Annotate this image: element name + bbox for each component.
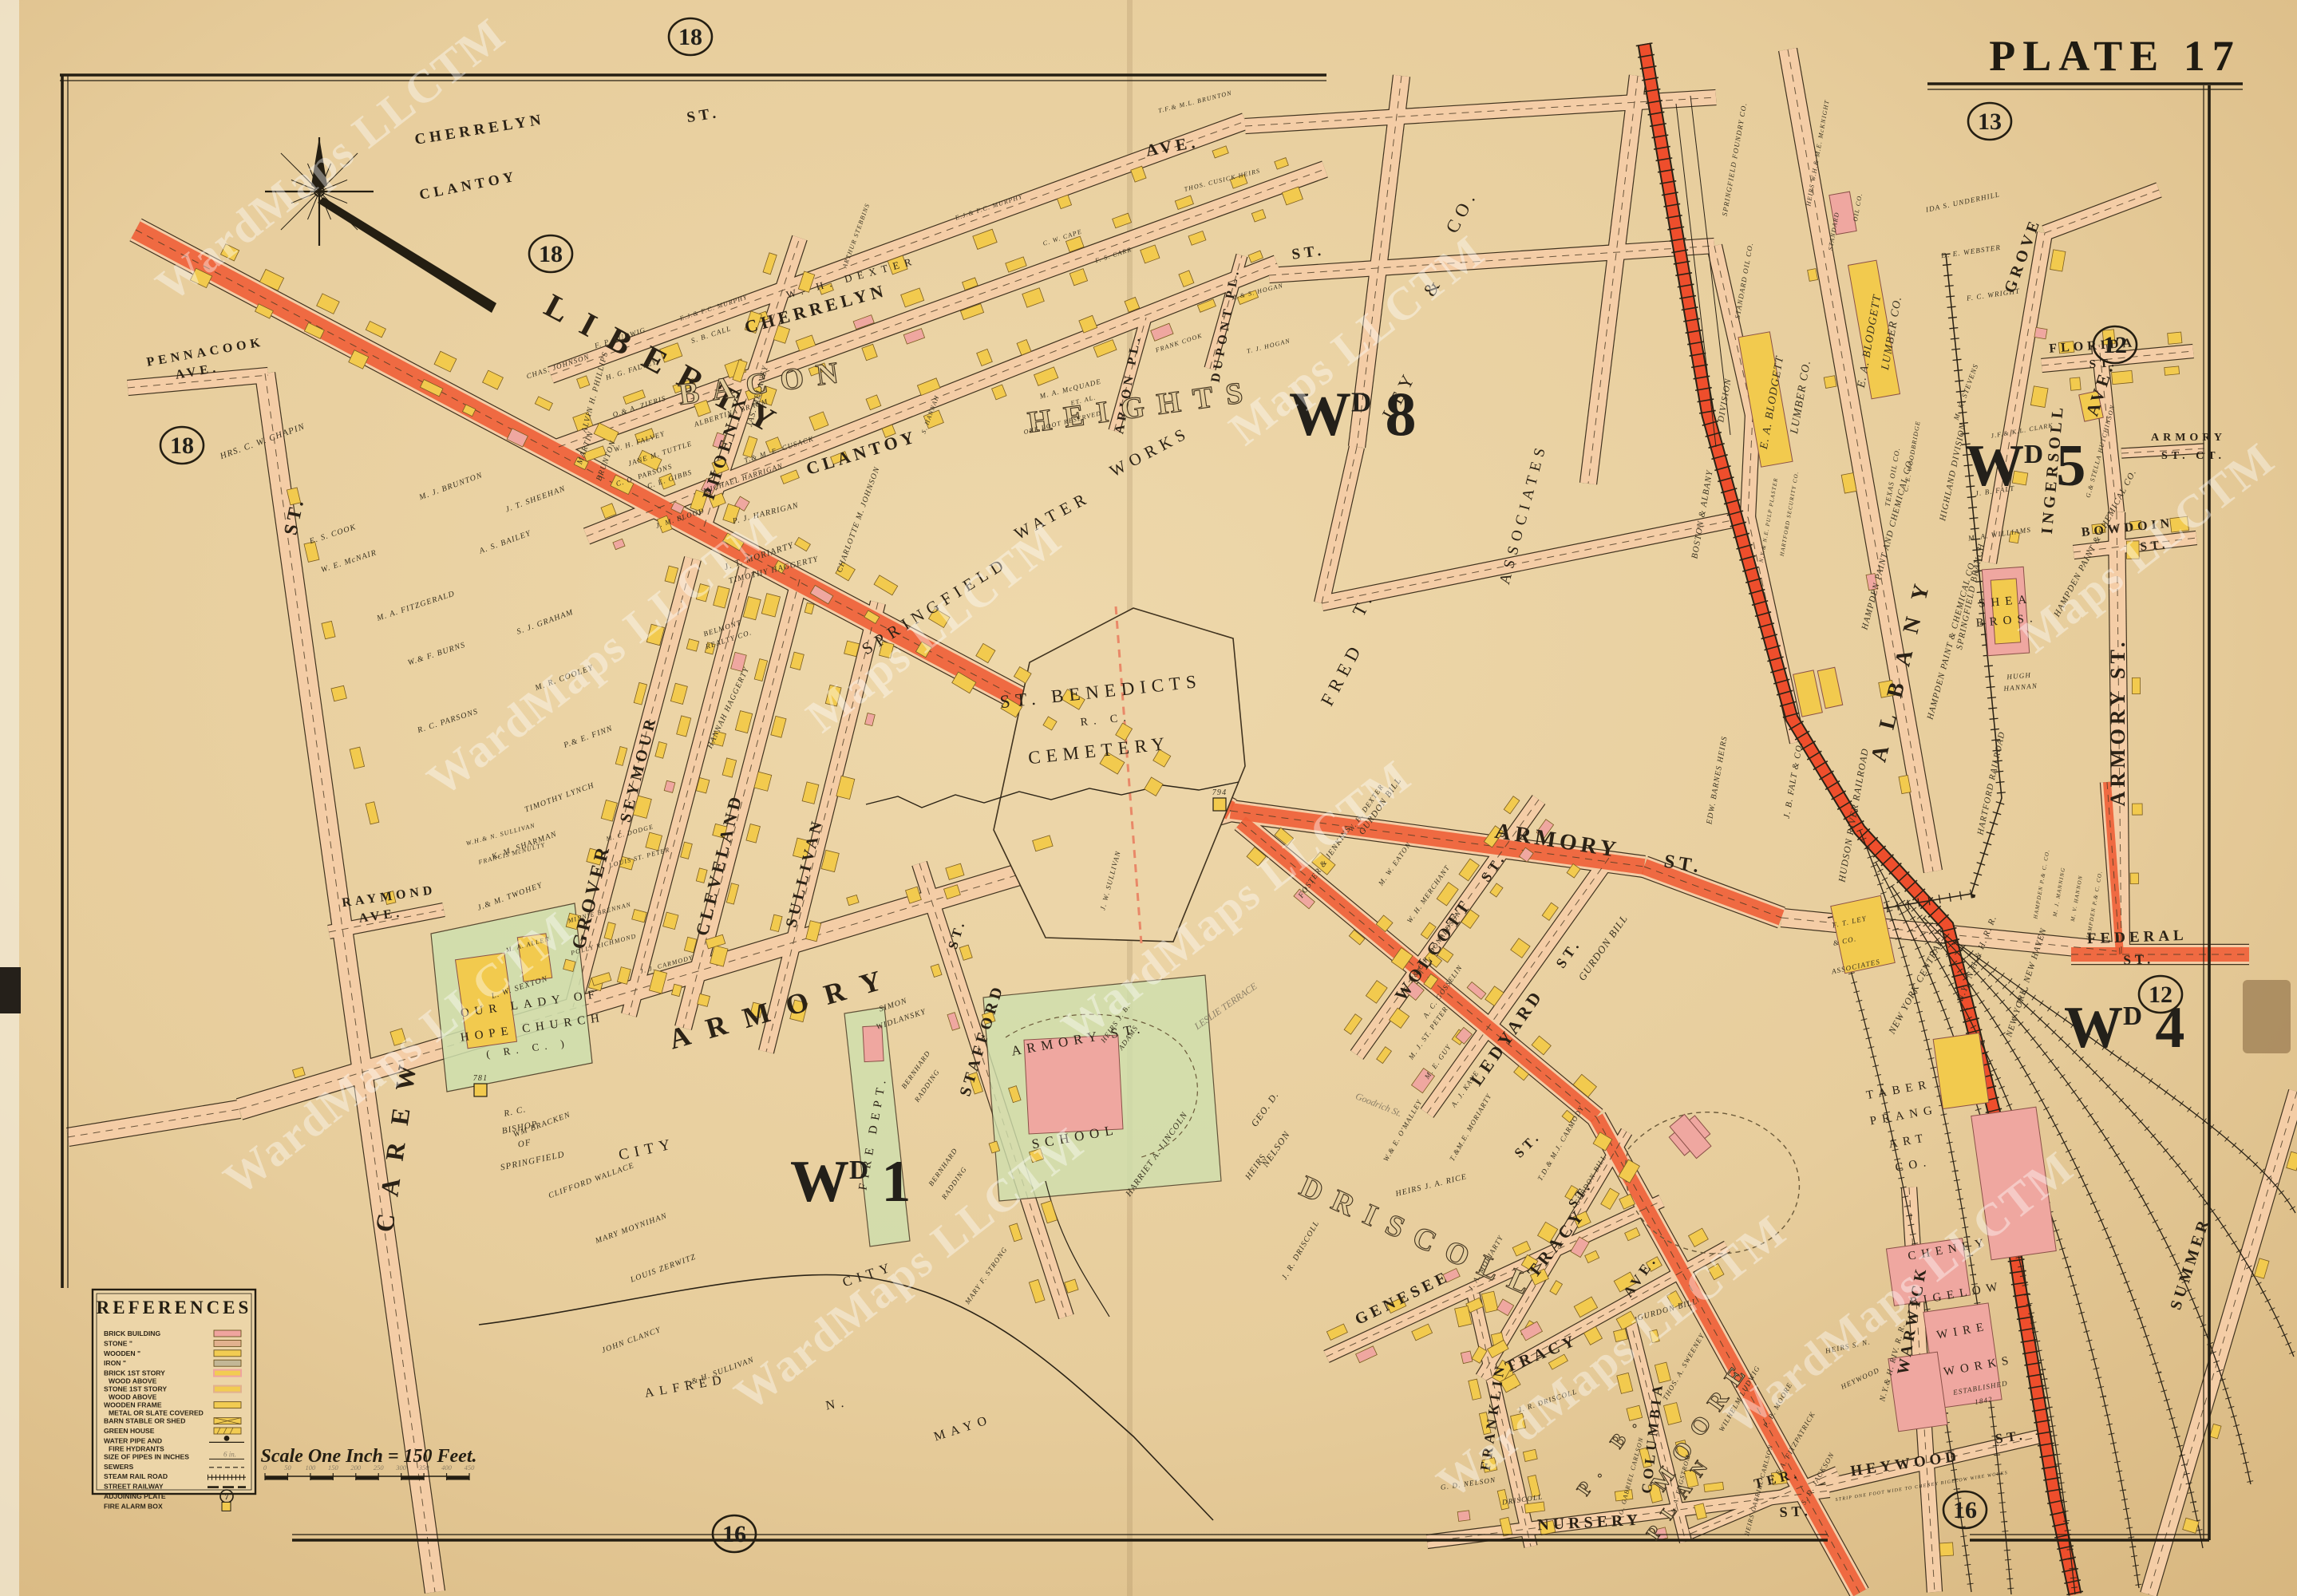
building xyxy=(2070,377,2081,390)
legend-item-label: STEAM RAIL ROAD xyxy=(104,1472,168,1480)
fire-alarm-number: 781 xyxy=(473,1074,488,1083)
scale-tick-label: 250 xyxy=(374,1464,385,1472)
paper-stain xyxy=(2243,980,2291,1053)
building xyxy=(1461,1351,1473,1364)
building xyxy=(686,639,699,651)
adjoining-plate-number: 16 xyxy=(1953,1497,1977,1523)
scale-block xyxy=(401,1476,424,1480)
adjoining-plate-number: 12 xyxy=(2103,332,2127,358)
map-label: ST. xyxy=(1779,1503,1812,1520)
building xyxy=(2030,386,2048,408)
legend-swatch xyxy=(214,1360,241,1366)
legend-swatch xyxy=(214,1402,241,1408)
adjoining-plate-number: 13 xyxy=(1978,109,2002,135)
scale-tick-label: 200 xyxy=(350,1464,362,1472)
legend-item-label: ADJOINING PLATE xyxy=(104,1492,166,1500)
legend-item-label2: FIRE HYDRANTS xyxy=(109,1444,164,1452)
building xyxy=(698,994,710,1006)
scale-block xyxy=(356,1476,378,1480)
building xyxy=(331,685,346,701)
scale-tick-label: 100 xyxy=(306,1464,317,1472)
building xyxy=(2130,873,2138,884)
legend-swatch xyxy=(214,1330,241,1337)
atlas-plate-scan: LIBERTYARMORYARMORYST.ARMORY ST.AVE.ARMO… xyxy=(0,0,2297,1596)
scale-block xyxy=(265,1476,287,1480)
legend-item-label: FIRE ALARM BOX xyxy=(104,1502,163,1510)
references-legend: REFERENCESBRICK BUILDINGSTONE "WOODEN "I… xyxy=(93,1290,255,1511)
fire-alarm-number: 794 xyxy=(1212,788,1228,797)
landmark-building xyxy=(863,1025,884,1061)
legend-item-label: IRON " xyxy=(104,1359,126,1367)
adjoining-plate-number: 18 xyxy=(539,241,563,267)
legend-plate-number: 7 xyxy=(225,1493,229,1502)
adjoining-plate-number: 18 xyxy=(170,433,194,459)
map-canvas: LIBERTYARMORYARMORYST.ARMORY ST.AVE.ARMO… xyxy=(0,0,2297,1596)
scale-tick-label: 150 xyxy=(328,1464,339,1472)
legend-item-label: WOODEN " xyxy=(104,1349,140,1357)
legend-item-label: STREET RAILWAY xyxy=(104,1483,164,1491)
legend-alarm-box xyxy=(222,1502,231,1511)
building xyxy=(2165,366,2180,375)
scale-tick-label: 50 xyxy=(284,1464,291,1472)
building xyxy=(563,959,575,971)
scale-block xyxy=(447,1476,469,1480)
map-label: ARMORY ST. xyxy=(2106,638,2129,807)
legend-item-label: BARN STABLE OR SHED xyxy=(104,1417,186,1425)
landmark-building xyxy=(1991,579,2021,644)
scale-tick-label: 300 xyxy=(395,1464,407,1472)
building xyxy=(1808,269,1818,282)
scale-block xyxy=(310,1476,333,1480)
legend-item-label: WATER PIPE AND xyxy=(104,1436,162,1444)
fire-alarm-box xyxy=(1213,798,1226,811)
landmark-building xyxy=(1933,1033,1989,1108)
adjoining-plate-number: 16 xyxy=(722,1521,746,1547)
legend-swatch xyxy=(214,1370,241,1377)
legend-item-label: GREEN HOUSE xyxy=(104,1427,155,1435)
legend-item-label: STONE 1ST STORY xyxy=(104,1385,167,1393)
building xyxy=(2132,678,2140,693)
building xyxy=(1824,376,1836,389)
fire-alarm-box xyxy=(474,1084,487,1096)
scan-edge xyxy=(0,0,19,1596)
building xyxy=(2034,327,2047,339)
building xyxy=(2133,804,2143,815)
legend-swatch xyxy=(214,1386,241,1393)
building xyxy=(2168,332,2182,344)
building xyxy=(1939,1543,1953,1556)
scan-artifact xyxy=(0,967,21,1013)
legend-swatch xyxy=(214,1340,241,1346)
legend-title: REFERENCES xyxy=(97,1298,252,1317)
map-label: FEDERAL xyxy=(2087,927,2188,947)
legend-hydrant-dot xyxy=(224,1436,230,1441)
legend-item-label2: WOOD ABOVE xyxy=(109,1377,157,1385)
adjoining-plate-number: 12 xyxy=(2149,982,2172,1008)
legend-item-label: BRICK 1ST STORY xyxy=(104,1369,165,1377)
map-label: ST. xyxy=(2123,951,2154,967)
building xyxy=(1457,1511,1470,1522)
legend-item-label: STONE " xyxy=(104,1339,132,1347)
legend-swatch xyxy=(214,1428,241,1434)
legend-item-label: SIZE OF PIPES IN INCHES xyxy=(104,1452,189,1460)
plate-title: PLATE 17 xyxy=(1989,32,2241,80)
map-label: ARMORY xyxy=(2151,432,2226,444)
scale-tick-label: 450 xyxy=(465,1464,476,1472)
legend-pipe-note: 6 in. xyxy=(223,1450,236,1458)
legend-item-label: BRICK BUILDING xyxy=(104,1329,160,1337)
scale-tick-label: 400 xyxy=(441,1464,453,1472)
scale-tick-label: 350 xyxy=(418,1464,430,1472)
legend-item-label2: WOOD ABOVE xyxy=(109,1393,157,1401)
legend-swatch xyxy=(214,1350,241,1357)
adjoining-plate-number: 18 xyxy=(678,24,702,50)
legend-item-label: WOODEN FRAME xyxy=(104,1401,162,1409)
legend-item-label2: METAL OR SLATE COVERED xyxy=(109,1409,204,1417)
legend-item-label: SEWERS xyxy=(104,1463,134,1471)
